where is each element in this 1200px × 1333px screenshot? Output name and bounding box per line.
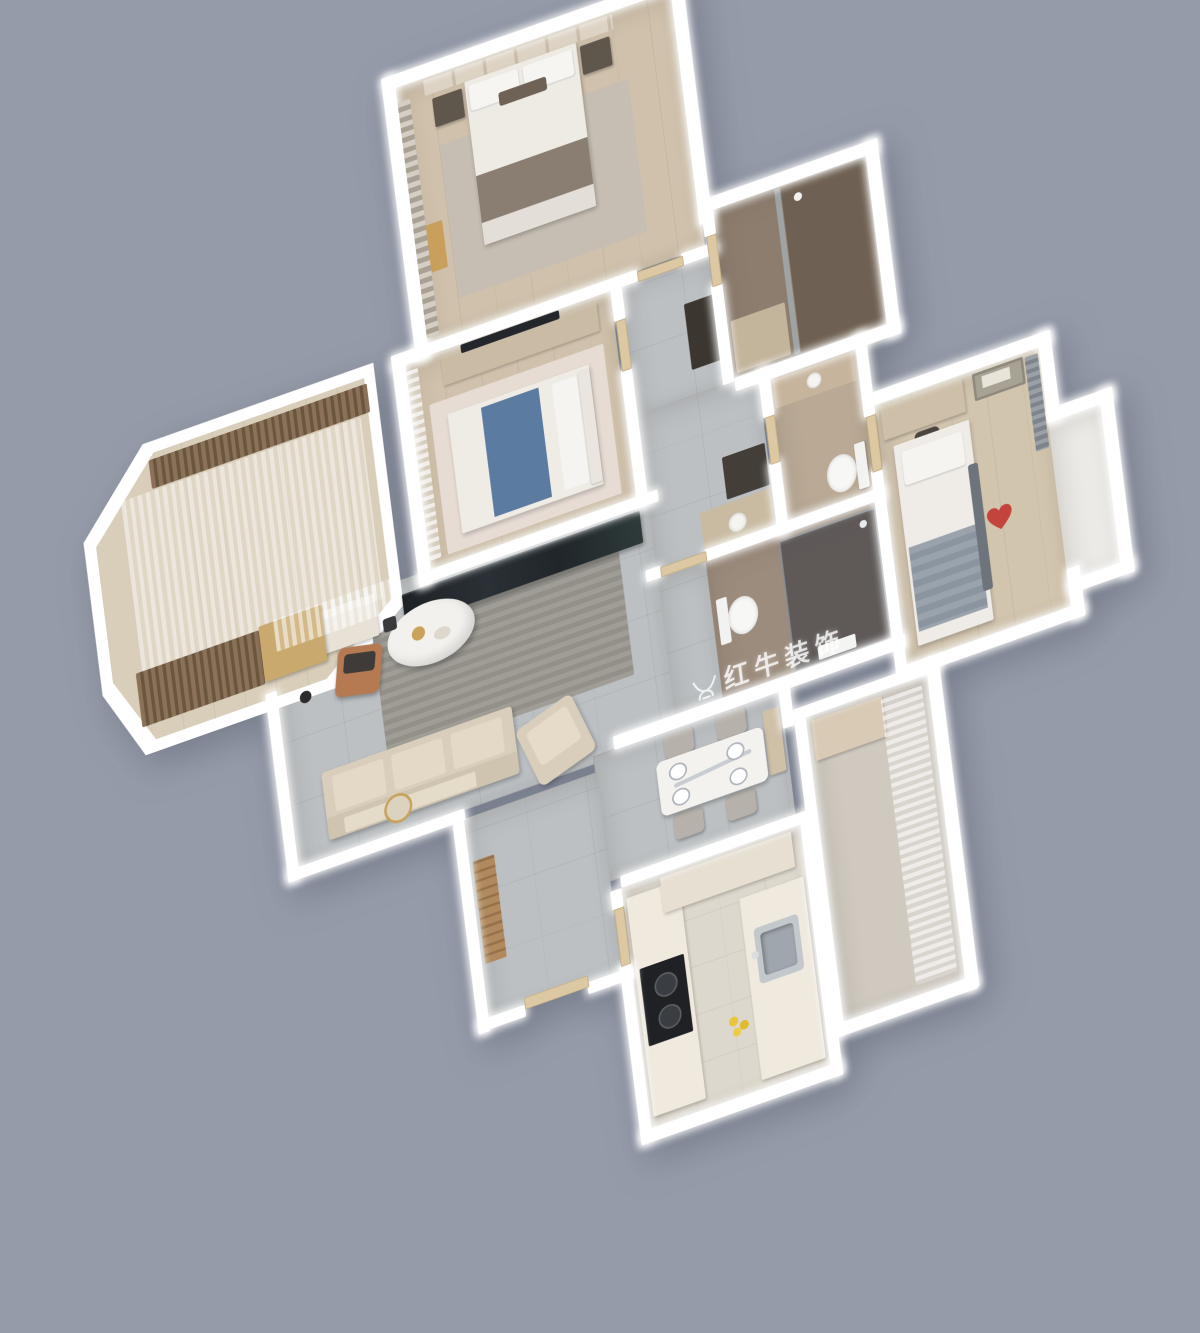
place-setting-4 <box>728 765 748 788</box>
place-setting-3 <box>671 785 691 808</box>
coffee-table-dish <box>433 624 451 642</box>
leather-chair-back <box>343 651 376 675</box>
floor-plan-render: 红牛装饰 HONG NIU ZHUANG SHI <box>58 0 1200 1326</box>
faucet <box>751 950 759 960</box>
guest-wash-basin <box>806 370 823 390</box>
sink-basin <box>760 922 798 976</box>
burner-1 <box>653 969 679 1001</box>
kids-pillows <box>901 431 966 486</box>
hall-wash-basin <box>727 510 747 535</box>
gas-cooktop <box>639 954 693 1047</box>
screenshot-root: { "scene": { "type": "3d-isometric-apart… <box>0 0 1200 1200</box>
coffee-table-decor <box>411 624 426 642</box>
shower-head-2 <box>859 519 867 529</box>
kids-wall-art-inner <box>981 367 1010 389</box>
bedroom2-blue-blanket <box>481 388 552 517</box>
place-setting-2 <box>725 740 745 763</box>
burner-2 <box>657 1001 683 1033</box>
leather-desk-chair <box>335 643 383 698</box>
